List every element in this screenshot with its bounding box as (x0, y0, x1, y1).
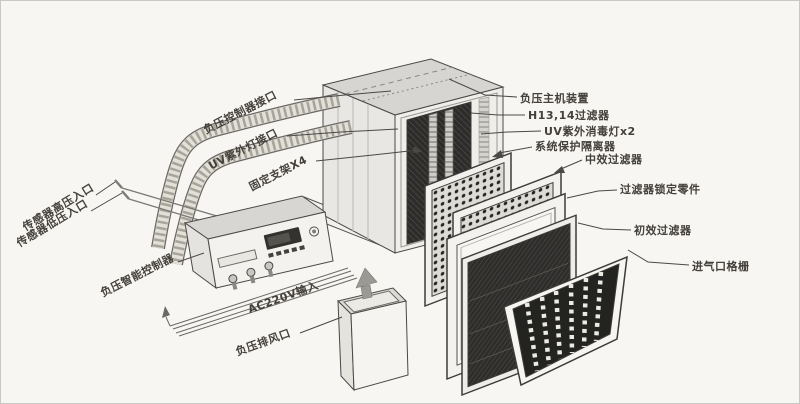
label-layer: 负压控制器接口 UV紫外灯接口 固定支架X4 传感器高压入口 传感器低压入口 负… (1, 1, 799, 403)
label-inlet-grille: 进气口格栅 (692, 258, 750, 274)
label-ac-input: AC220V输入 (245, 277, 320, 317)
label-filter-lock: 过滤器锁定零件 (620, 181, 701, 197)
label-fixing-bracket: 固定支架X4 (246, 152, 310, 195)
label-medium-filter: 中效过滤器 (585, 151, 643, 167)
label-uv-lamp: UV紫外消毒灯x2 (544, 123, 636, 139)
label-hepa-filter: H13,14过滤器 (528, 107, 610, 123)
label-main-unit: 负压主机装置 (520, 90, 589, 106)
label-smart-controller: 负压智能控制器 (98, 250, 177, 301)
exploded-diagram-canvas: 负压控制器接口 UV紫外灯接口 固定支架X4 传感器高压入口 传感器低压入口 负… (0, 0, 800, 404)
label-exhaust-outlet: 负压排风口 (233, 325, 293, 360)
label-primary-filter: 初效过滤器 (634, 222, 692, 238)
